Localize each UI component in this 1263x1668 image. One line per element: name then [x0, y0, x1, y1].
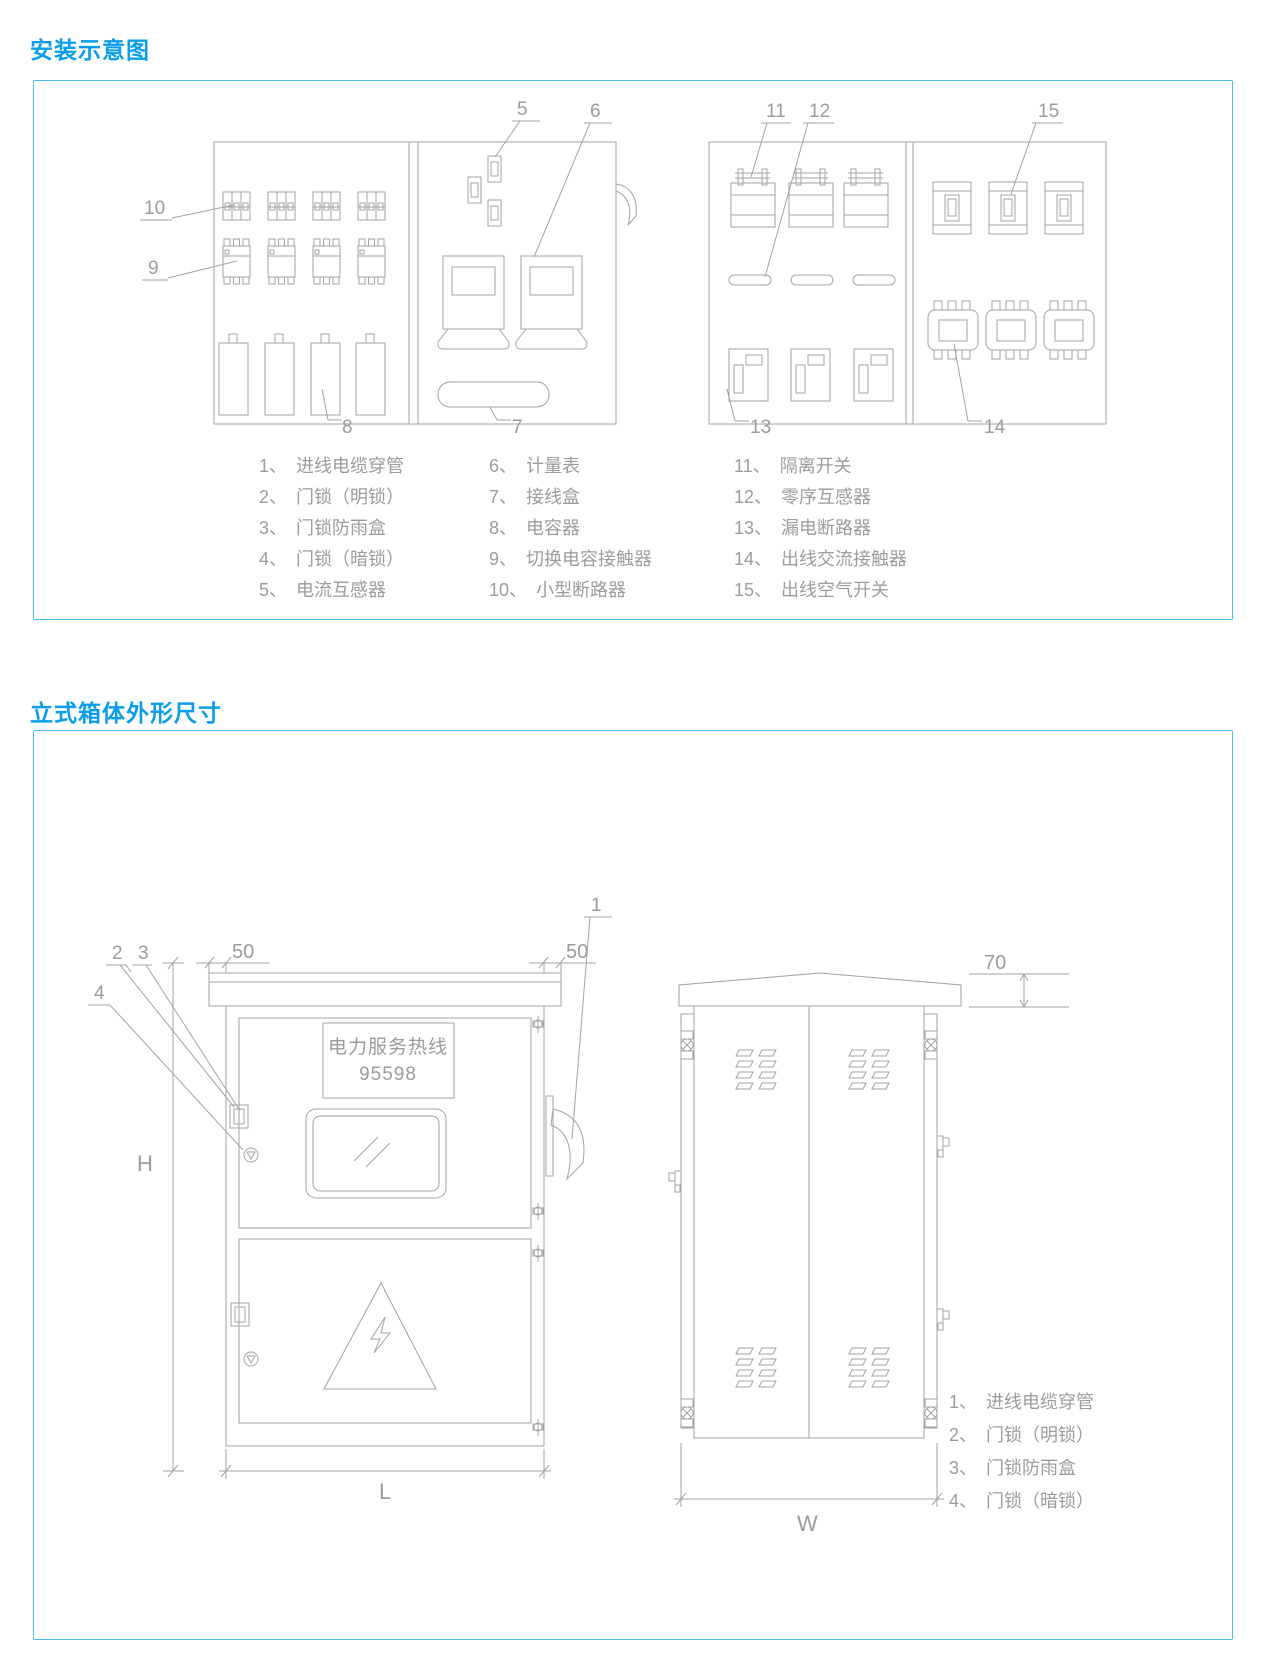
legend-item-label: 计量表 — [526, 456, 580, 476]
legend-item: 1、进线电缆穿管 — [949, 1386, 1094, 1419]
legend-item: 1、进线电缆穿管 — [259, 451, 404, 482]
legend-item-number: 5、 — [259, 575, 287, 606]
legend-item: 3、门锁防雨盒 — [949, 1452, 1094, 1485]
legend-item-label: 门锁防雨盒 — [296, 518, 386, 538]
callout-2: 2 — [112, 943, 123, 964]
legend-item: 11、隔离开关 — [734, 451, 907, 482]
service-sign-text: 电力服务热线 95598 — [328, 1036, 448, 1085]
legend-item-label: 门锁（明锁） — [986, 1425, 1094, 1445]
service-hotline-text: 电力服务热线 — [328, 1036, 448, 1058]
side-view-drawing — [669, 973, 961, 1438]
callout-3: 3 — [138, 943, 149, 964]
legend-item-label: 门锁防雨盒 — [986, 1458, 1076, 1478]
lower-door-hidden-lock — [244, 1352, 258, 1366]
legend-item-label: 出线交流接触器 — [781, 549, 907, 569]
installation-diagram-panel: 10 9 5 6 8 7 — [33, 80, 1233, 620]
dimensions-legend: 1、进线电缆穿管 2、门锁（明锁） 3、门锁防雨盒 4、门锁（暗锁） — [949, 1386, 1094, 1518]
legend-item: 3、门锁防雨盒 — [259, 513, 404, 544]
legend-item: 13、漏电断路器 — [734, 513, 907, 544]
dim-roof-height: 70 — [984, 952, 1006, 974]
legend-item: 14、出线交流接触器 — [734, 544, 907, 575]
left-cabinet-callouts: 10 9 5 6 8 7 — [140, 99, 612, 438]
front-view-dimensions: 50 50 H L — [137, 941, 596, 1504]
callout-1: 1 — [591, 895, 602, 916]
legend-item: 10、小型断路器 — [489, 575, 652, 606]
cabinet-dimensions-panel: 50 50 H L 2 3 4 — [33, 730, 1233, 1640]
inlet-cable-conduit — [551, 1109, 584, 1179]
legend-item-number: 13、 — [734, 513, 772, 544]
dim-right-overhang: 50 — [566, 941, 588, 963]
legend-item-number: 2、 — [259, 482, 287, 513]
callout-5: 5 — [517, 99, 528, 120]
legend-item: 4、门锁（暗锁） — [259, 544, 404, 575]
side-roof — [679, 973, 961, 1006]
callout-14: 14 — [984, 417, 1006, 438]
legend-item-number: 9、 — [489, 544, 517, 575]
legend-item: 15、出线空气开关 — [734, 575, 907, 606]
catalog-page: 安装示意图 — [0, 0, 1263, 1668]
legend-item-label: 漏电断路器 — [781, 518, 871, 538]
left-cabinet-drawing — [214, 142, 636, 424]
legend-item-label: 切换电容接触器 — [526, 549, 652, 569]
right-cabinet-drawing — [709, 142, 1106, 424]
front-roof — [209, 973, 561, 1006]
dim-width-label: W — [797, 1511, 818, 1536]
legend-item-number: 2、 — [949, 1419, 977, 1452]
upper-door-hidden-lock — [244, 1148, 258, 1162]
legend-item-label: 小型断路器 — [536, 580, 626, 600]
legend-item-number: 10、 — [489, 575, 527, 606]
meter-window — [306, 1109, 446, 1198]
warning-triangle — [324, 1283, 436, 1389]
legend-item: 2、门锁（明锁） — [259, 482, 404, 513]
service-hotline-number: 95598 — [359, 1064, 417, 1085]
callout-12: 12 — [809, 101, 830, 122]
legend-item: 2、门锁（明锁） — [949, 1419, 1094, 1452]
callout-9: 9 — [148, 258, 159, 279]
callout-11: 11 — [766, 101, 786, 122]
legend-item-number: 14、 — [734, 544, 772, 575]
terminal-box — [438, 382, 549, 407]
legend-item-number: 4、 — [259, 544, 287, 575]
section2-title: 立式箱体外形尺寸 — [30, 694, 222, 728]
legend-item-number: 3、 — [949, 1452, 977, 1485]
legend-item-label: 门锁（暗锁） — [296, 549, 404, 569]
legend-item-number: 8、 — [489, 513, 517, 544]
right-cabinet-callouts: 11 12 15 13 14 — [727, 101, 1063, 438]
legend-item-label: 出线空气开关 — [781, 580, 889, 600]
callout-8: 8 — [342, 417, 353, 438]
dim-left-overhang: 50 — [232, 941, 254, 963]
legend-item-number: 11、 — [734, 451, 771, 482]
legend-item-label: 电流互感器 — [296, 580, 386, 600]
installation-legend-col3: 11、隔离开关 12、零序互感器 13、漏电断路器 14、出线交流接触器 15、… — [734, 451, 907, 606]
legend-item: 6、计量表 — [489, 451, 652, 482]
legend-item-label: 电容器 — [526, 518, 580, 538]
section1-title: 安装示意图 — [30, 31, 150, 65]
legend-item-number: 3、 — [259, 513, 287, 544]
legend-item-label: 隔离开关 — [780, 456, 852, 476]
dim-length-label: L — [379, 1479, 391, 1504]
installation-legend-col1: 1、进线电缆穿管 2、门锁（明锁） 3、门锁防雨盒 4、门锁（暗锁） 5、电流互… — [259, 451, 404, 606]
callout-10: 10 — [144, 198, 165, 219]
legend-item-label: 门锁（暗锁） — [986, 1491, 1094, 1511]
legend-item: 12、零序互感器 — [734, 482, 907, 513]
callout-4: 4 — [94, 983, 105, 1004]
dim-height-label: H — [137, 1151, 153, 1176]
legend-item-label: 门锁（明锁） — [296, 487, 404, 507]
service-sign — [323, 1023, 454, 1098]
legend-item-label: 接线盒 — [526, 487, 580, 507]
legend-item-number: 12、 — [734, 482, 772, 513]
legend-item: 4、门锁（暗锁） — [949, 1485, 1094, 1518]
legend-item-number: 15、 — [734, 575, 772, 606]
legend-item: 8、电容器 — [489, 513, 652, 544]
legend-item-number: 1、 — [259, 451, 287, 482]
cable-conduit — [616, 184, 636, 225]
callout-13: 13 — [750, 417, 771, 438]
lower-door-lock — [231, 1303, 249, 1326]
installation-legend-col2: 6、计量表 7、接线盒 8、电容器 9、切换电容接触器 10、小型断路器 — [489, 451, 652, 606]
callout-6: 6 — [590, 101, 601, 122]
legend-item-number: 1、 — [949, 1386, 977, 1419]
legend-item-label: 进线电缆穿管 — [296, 456, 404, 476]
legend-item-label: 零序互感器 — [781, 487, 871, 507]
legend-item-number: 4、 — [949, 1485, 977, 1518]
front-lower-door — [239, 1239, 531, 1423]
legend-item-number: 6、 — [489, 451, 517, 482]
lightning-bolt-icon — [371, 1317, 390, 1353]
legend-item-label: 进线电缆穿管 — [986, 1392, 1094, 1412]
callout-15: 15 — [1038, 101, 1059, 122]
callout-7: 7 — [512, 417, 523, 438]
legend-item: 9、切换电容接触器 — [489, 544, 652, 575]
legend-item: 5、电流互感器 — [259, 575, 404, 606]
legend-item-number: 7、 — [489, 482, 517, 513]
legend-item: 7、接线盒 — [489, 482, 652, 513]
